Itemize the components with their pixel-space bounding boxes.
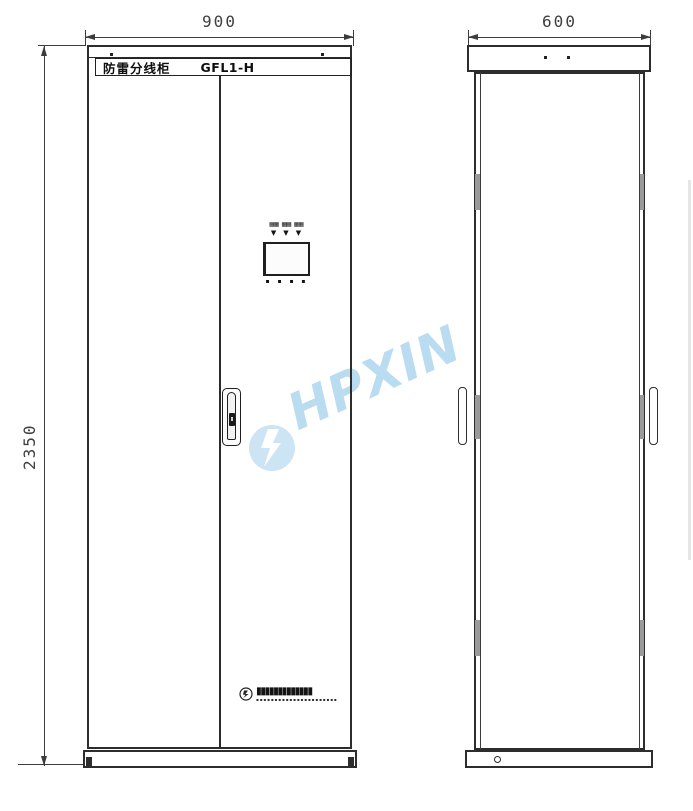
lock-keyhole — [231, 417, 234, 421]
brand-subtext: ▪▪▪▪▪▪▪▪▪▪▪▪▪▪▪▪▪▪▪▪▪▪ — [256, 698, 338, 702]
leveling-foot — [348, 757, 354, 766]
indicator-label: ▦▦ — [294, 221, 303, 229]
side-frame-inner-line — [480, 72, 481, 750]
scan-edge-artifact — [688, 180, 691, 560]
indicator-pointer-icon: ▼ — [271, 229, 276, 238]
mount-hole-dot — [567, 56, 570, 59]
brand-name-text: ▮▮▮▮▮▮▮▮▮▮▮▮▮ — [256, 686, 312, 697]
hinge-mark — [640, 174, 645, 210]
hinge-mark — [640, 620, 645, 656]
hinge-mark — [475, 174, 480, 210]
front-plinth — [83, 750, 357, 768]
door-handle[interactable] — [222, 388, 241, 446]
indicator-pointer-row: ▼ ▼ ▼ — [261, 229, 311, 238]
brand-logo-icon — [239, 687, 253, 701]
hinge-mark — [475, 620, 480, 656]
front-height-dim-line — [44, 46, 45, 766]
dim-arrow-right-icon — [344, 34, 354, 40]
dim-arrow-up-icon — [41, 46, 47, 56]
nameplate: 防雷分线柜 GFL1-H — [95, 58, 352, 76]
drawing-canvas: HPXIN 900 2350 防雷分线柜 GFL1-H ▦▦ — [0, 0, 693, 811]
panel-button-row: ▪ ▪ ▪ ▪ — [262, 278, 312, 286]
hinge-mark — [475, 395, 480, 439]
nameplate-title: 防雷分线柜 — [103, 58, 171, 77]
indicator-pointer-icon: ▼ — [283, 229, 288, 238]
indicator-label: ▦▦ — [269, 221, 278, 229]
dim-extension-line — [18, 764, 84, 765]
door-divider-line — [219, 76, 221, 748]
base-hole — [494, 756, 501, 763]
dim-arrow-right-icon — [641, 34, 651, 40]
hinge-mark — [640, 395, 645, 439]
indicator-label-row: ▦▦ ▦▦ ▦▦ — [261, 221, 311, 229]
leveling-foot — [86, 757, 92, 766]
front-width-dim-label: 900 — [85, 12, 354, 31]
lcd-display-screen — [263, 242, 310, 276]
mount-hole-dot — [321, 53, 324, 56]
side-handle-profile — [649, 387, 658, 445]
front-width-dim-line — [85, 37, 354, 38]
side-top-cap — [467, 45, 651, 72]
dim-arrow-down-icon — [41, 756, 47, 766]
drawing-layer: 900 2350 防雷分线柜 GFL1-H ▦▦ ▦▦ ▦▦ ▼ ▼ ▼ — [0, 0, 693, 811]
side-handle-profile — [458, 387, 467, 445]
mount-hole-dot — [544, 56, 547, 59]
dim-arrow-left-icon — [468, 34, 478, 40]
indicator-label: ▦▦ — [281, 221, 290, 229]
nameplate-model: GFL1-H — [201, 60, 255, 75]
front-height-dim-label: 2350 — [20, 423, 39, 470]
mount-hole-dot — [110, 53, 113, 56]
side-body-outline — [474, 72, 645, 750]
indicator-pointer-icon: ▼ — [296, 229, 301, 238]
side-width-dim-line — [468, 37, 651, 38]
dim-arrow-left-icon — [85, 34, 95, 40]
side-width-dim-label: 600 — [468, 12, 651, 31]
